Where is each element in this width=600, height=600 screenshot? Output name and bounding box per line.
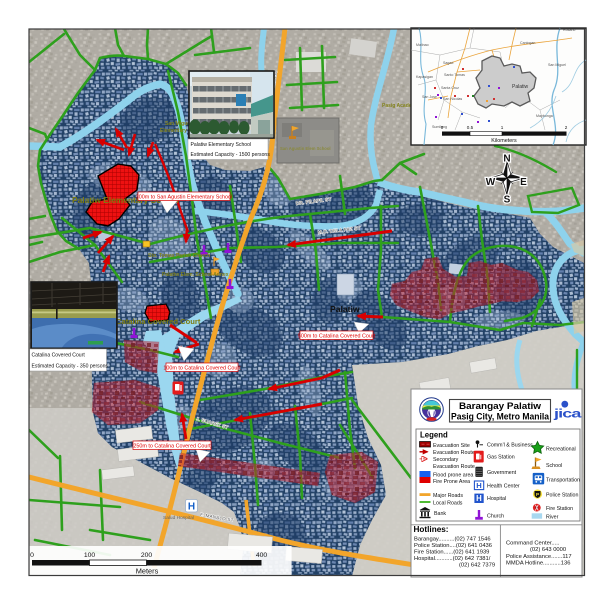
svg-text:Sumilang: Sumilang (432, 125, 447, 129)
svg-text:N: N (503, 154, 510, 165)
svg-text:H: H (476, 481, 481, 490)
svg-text:jica: jica (552, 407, 581, 421)
svg-text:Church: Church (487, 514, 504, 520)
svg-text:San Nicolas: San Nicolas (443, 97, 462, 101)
svg-text:S: S (504, 195, 511, 206)
svg-text:Police Assistance.......117: Police Assistance.......117 (506, 554, 572, 560)
svg-text:400: 400 (256, 552, 268, 559)
svg-text:Major Roads: Major Roads (433, 493, 463, 499)
svg-text:Police Station....(02) 641 043: Police Station....(02) 641 0436 (414, 543, 492, 549)
svg-text:Sagad: Sagad (443, 61, 453, 65)
svg-text:Hospital: Hospital (487, 496, 506, 502)
svg-text:W: W (486, 177, 496, 188)
svg-text:Catalina Covered Court: Catalina Covered Court (116, 317, 201, 326)
svg-text:H: H (476, 494, 482, 503)
svg-text:0: 0 (441, 125, 444, 130)
svg-text:River: River (546, 515, 559, 521)
svg-text:500m to Catalina Covered Court: 500m to Catalina Covered Court (298, 333, 376, 339)
svg-text:School: School (546, 463, 562, 469)
svg-text:Palatiw: Palatiw (512, 84, 529, 90)
svg-text:Transportation: Transportation (546, 477, 580, 483)
svg-text:250m to Catalina Covered Court: 250m to Catalina Covered Court (133, 443, 211, 449)
svg-text:Estimated Capacity - 1500 pers: Estimated Capacity - 1500 persons (191, 152, 271, 158)
svg-text:San Miguel: San Miguel (165, 121, 192, 127)
svg-text:E: E (520, 177, 527, 188)
svg-text:Flood prone area: Flood prone area (433, 473, 473, 479)
svg-text:Command Center.....: Command Center..... (506, 541, 560, 547)
svg-text:Bank: Bank (434, 511, 446, 517)
svg-text:100: 100 (84, 552, 96, 559)
svg-text:Estimated Capacity - 350 perso: Estimated Capacity - 350 persons (32, 364, 109, 370)
svg-text:Kapasigan: Kapasigan (416, 75, 433, 79)
svg-text:2: 2 (565, 125, 568, 130)
svg-text:Hotlines:: Hotlines: (414, 525, 449, 534)
svg-text:Gas Station: Gas Station (487, 455, 515, 461)
svg-text:Barangay Palatiw: Barangay Palatiw (459, 400, 542, 411)
svg-text:Santa Cruz: Santa Cruz (441, 86, 459, 90)
svg-text:Secondary: Secondary (433, 457, 459, 463)
svg-text:San Miguel: San Miguel (548, 63, 566, 67)
svg-text:Barangay..........(02) 747 154: Barangay..........(02) 747 1546 (414, 537, 491, 543)
svg-text:0.5: 0.5 (467, 125, 474, 130)
svg-text:Fire Prone Area: Fire Prone Area (433, 479, 470, 485)
svg-text:Evacuation Site: Evacuation Site (433, 443, 470, 449)
svg-text:Government: Government (487, 470, 517, 476)
svg-text:Local Roads: Local Roads (433, 500, 463, 506)
svg-text:Health Center: Health Center (487, 483, 520, 489)
svg-text:P: P (536, 492, 539, 497)
svg-text:Santo Tomas: Santo Tomas (444, 73, 465, 77)
svg-text:Palatiw: Palatiw (330, 304, 360, 314)
svg-text:Catalina Covered Court: Catalina Covered Court (32, 353, 86, 359)
svg-text:Recreational: Recreational (546, 446, 576, 452)
svg-text:100m to Catalina Covered Court: 100m to Catalina Covered Court (163, 365, 241, 371)
svg-text:Fire Station: Fire Station (546, 506, 573, 512)
svg-text:Malinao: Malinao (416, 43, 429, 47)
svg-text:Fire Station......(02) 641 193: Fire Station......(02) 641 1939 (414, 550, 489, 556)
svg-text:Sto. Tomas Parish Church: Sto. Tomas Parish Church (148, 253, 210, 259)
svg-text:(02) 643 0000: (02) 643 0000 (530, 547, 566, 553)
svg-text:Caniogan: Caniogan (520, 41, 535, 45)
svg-text:San Jose: San Jose (422, 95, 437, 99)
svg-text:Evacuation Route: Evacuation Route (433, 450, 475, 456)
svg-text:H: H (188, 502, 195, 513)
svg-text:Evacuation Route: Evacuation Route (433, 464, 475, 470)
svg-text:Palatiw Elementary School: Palatiw Elementary School (191, 142, 252, 148)
svg-text:0: 0 (30, 552, 34, 559)
svg-text:Hospital...........(02) 642 73: Hospital...........(02) 642 7381/ (414, 556, 491, 562)
svg-text:MMDA Hotline...........136: MMDA Hotline...........136 (506, 560, 570, 566)
svg-text:Meters: Meters (136, 567, 159, 576)
svg-text:Salud Hospital: Salud Hospital (163, 515, 194, 521)
svg-text:(02) 642 7379: (02) 642 7379 (459, 563, 495, 569)
svg-text:Comm'l & Business: Comm'l & Business (487, 442, 533, 448)
svg-text:Legend: Legend (420, 431, 448, 440)
svg-text:200: 200 (141, 552, 153, 559)
svg-text:300m to San Agustin Elementary: 300m to San Agustin Elementary School (136, 194, 233, 200)
svg-text:Pasig City, Metro Manila: Pasig City, Metro Manila (451, 410, 550, 421)
svg-text:Police Station: Police Station (546, 493, 578, 499)
svg-text:San Agustin Elem School: San Agustin Elem School (280, 146, 331, 151)
svg-text:Maybunga: Maybunga (536, 114, 553, 118)
svg-text:Palatiw Elem. School Annex: Palatiw Elem. School Annex (162, 272, 229, 278)
svg-text:1: 1 (501, 125, 504, 130)
svg-text:Kilometers: Kilometers (491, 138, 517, 144)
